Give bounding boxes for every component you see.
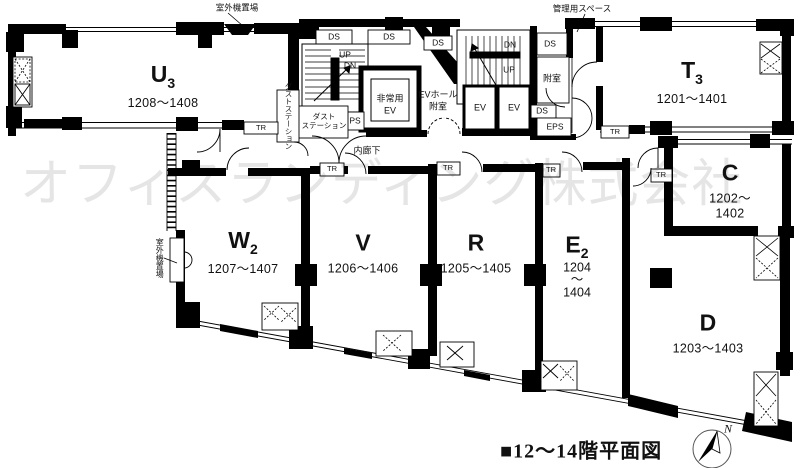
room-letter-sub: 2: [581, 245, 589, 261]
ev-hall-label-line2: 附室: [429, 102, 447, 111]
room-label-u3: U3 1208〜1408: [128, 61, 199, 111]
room-letter: U: [151, 61, 168, 87]
dust-station-label-line2: ステーション: [302, 122, 347, 130]
dn-label-right-stair: DN: [504, 41, 516, 50]
room-range: 1206〜1406: [328, 258, 399, 277]
room-range: 1404: [563, 286, 591, 299]
room-label-d: D 1203〜1403: [673, 310, 744, 357]
dn-label-left-stair: DN: [344, 62, 356, 71]
ps-label: PS: [349, 117, 360, 126]
room-range: 1202〜1402: [695, 188, 765, 221]
dust-station-label-line1: ダスト: [313, 113, 336, 121]
inner-corridor-label: 内廊下: [353, 146, 380, 155]
room-letter: W: [228, 227, 250, 253]
eps-label: EPS: [546, 123, 563, 132]
tr-label-t3: TR: [610, 128, 620, 136]
tr-label-e2: TR: [546, 166, 556, 174]
emergency-ev-label-line2: EV: [384, 106, 396, 115]
watermark-text: オフィスランディング株式会社: [20, 142, 743, 216]
room-letter: E: [565, 231, 580, 257]
room-label-t3: T3 1201〜1401: [657, 57, 728, 107]
compass-north-label: N: [724, 422, 732, 437]
room-letter-sub: 3: [695, 71, 703, 87]
ev-label-2: EV: [508, 103, 520, 112]
up-label-right-stair: UP: [503, 66, 515, 75]
room-range: 1205〜1405: [441, 258, 512, 277]
room-range: 1207〜1407: [208, 258, 279, 277]
emergency-ev-label-line1: 非常用: [376, 94, 403, 103]
anteroom-label: 附室: [543, 74, 561, 83]
floorplan-page: オフィスランディング株式会社 U3 1208〜1408 T3 1201〜1401…: [0, 0, 800, 468]
ds-label-3: DS: [432, 39, 444, 48]
room-label-r: R 1205〜1405: [441, 230, 512, 277]
ds-label-4: DS: [544, 40, 556, 49]
room-letter-sub: 3: [167, 75, 175, 91]
tr-label-r: TR: [443, 164, 453, 172]
tr-label-u3: TR: [256, 124, 266, 132]
room-range: 1208〜1408: [128, 92, 199, 111]
room-range: 〜: [571, 274, 584, 287]
ds-label-5: DS: [536, 107, 548, 116]
tr-label-d: TR: [656, 171, 666, 179]
room-label-v: V 1206〜1406: [328, 230, 399, 277]
up-label-left-stair: UP: [339, 51, 351, 60]
dust-station-vertical-label: ダストステーション: [284, 82, 292, 150]
ev-label-1: EV: [474, 103, 486, 112]
tr-label-v: TR: [327, 165, 337, 173]
ds-label-1: DS: [328, 33, 340, 42]
room-range: 1203〜1403: [673, 338, 744, 357]
room-letter: C: [722, 160, 739, 186]
room-label-w2: W2 1207〜1407: [208, 227, 279, 277]
room-letter: T: [681, 57, 695, 83]
room-range: 1201〜1401: [657, 88, 728, 107]
plan-title: ■12〜14階平面図: [500, 435, 662, 464]
outdoor-unit-top-label: 室外機置場: [216, 4, 259, 13]
ds-label-2: DS: [383, 33, 395, 42]
room-label-c: C 1202〜1402: [695, 160, 765, 221]
room-label-e2: E2 1204 〜 1404: [563, 231, 591, 298]
room-letter-sub: 2: [250, 241, 258, 257]
room-letter: R: [468, 230, 485, 256]
outdoor-unit-left-label: 室外機置場: [155, 238, 163, 278]
room-letter: D: [700, 310, 717, 336]
admin-space-label: 管理用スペース: [553, 5, 611, 14]
ev-hall-label-line1: EVホール: [418, 90, 457, 99]
room-letter: V: [355, 230, 370, 256]
